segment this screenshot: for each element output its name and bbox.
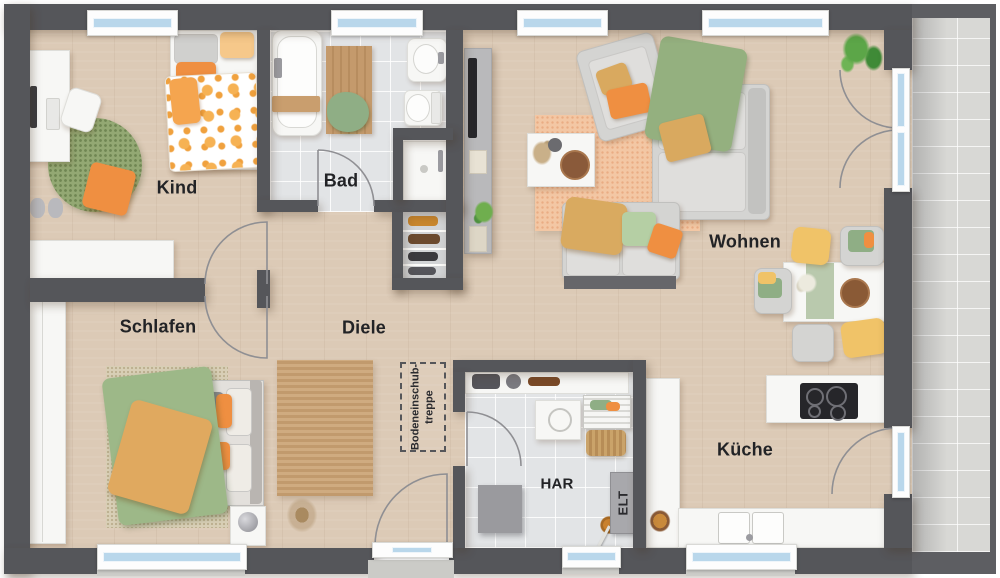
napkin-yellow-left	[758, 272, 776, 284]
helmet	[506, 374, 521, 389]
basin-faucet	[438, 52, 444, 64]
wall-har-west-b	[453, 466, 465, 548]
wall-bad-wohnen	[446, 30, 463, 290]
table-flowers	[792, 268, 822, 298]
burner-2	[826, 386, 847, 407]
window-kueche-glass	[692, 552, 791, 562]
shoes-2	[408, 234, 440, 244]
keyboard	[46, 98, 60, 130]
sofa-right-backrest	[748, 88, 766, 214]
attic-hatch-label: Bodeneinschub-treppe	[409, 364, 437, 450]
hallway-jute-rug	[277, 360, 373, 496]
shoe-shelf-1	[403, 230, 446, 232]
window-wohnen-1-glass	[523, 18, 602, 28]
burner-1	[806, 388, 824, 406]
window-kind-glass	[93, 18, 172, 28]
shelf-books-2	[469, 226, 487, 252]
attic-hatch: Bodeneinschub-treppe	[400, 362, 446, 452]
room-label-har: HAR	[540, 476, 573, 493]
shelf-plant	[470, 196, 498, 228]
wall-kind-schlafen	[30, 278, 205, 302]
potted-plant	[833, 22, 891, 82]
bed-pillow-orange-1	[216, 394, 232, 428]
sofa-blanket-tan	[560, 196, 629, 256]
kind-pillow-dotted	[220, 32, 254, 58]
kitchen-door-glass	[897, 432, 905, 492]
towel-pile	[327, 92, 369, 132]
bathtub-basin	[277, 36, 317, 128]
sink-basin-left	[718, 512, 750, 544]
monitor	[30, 86, 37, 128]
toilet-tank	[431, 92, 441, 124]
sofa-bottom-base	[564, 276, 676, 289]
sink-faucet	[746, 534, 753, 541]
skateboard	[528, 377, 560, 386]
bathtub-caddy	[272, 96, 320, 112]
entrance-step	[368, 560, 454, 578]
wall-har-kueche	[633, 360, 646, 548]
utility-grey-box	[478, 485, 522, 533]
shelf-books-1	[469, 150, 487, 174]
shoes-3	[408, 252, 438, 261]
wall-shower-left	[393, 140, 403, 200]
room-label-kind: Kind	[157, 178, 198, 199]
shoe-shelf-3	[403, 264, 446, 266]
shoes-4	[408, 267, 436, 275]
dried-plant	[280, 490, 324, 540]
room-label-bad: Bad	[324, 171, 359, 192]
wall-closet-bottom	[392, 278, 463, 290]
shower-drain	[420, 165, 428, 173]
kind-blanket	[169, 77, 202, 126]
dining-chair-grey-bottom	[792, 324, 834, 362]
cooktop	[800, 383, 858, 419]
wall-shower-top	[393, 128, 453, 140]
terrace-shadow	[912, 18, 990, 552]
burner-3	[808, 405, 821, 418]
nightstand-lamp	[238, 512, 258, 532]
tv	[468, 58, 477, 138]
room-label-kueche: Küche	[717, 440, 773, 461]
slipper-left	[30, 198, 45, 218]
wall-har-north	[453, 360, 637, 372]
kind-sideboard	[22, 240, 174, 280]
room-label-diele: Diele	[342, 318, 386, 339]
wall-har-west-a	[453, 372, 465, 412]
room-label-wohnen: Wohnen	[709, 232, 781, 253]
laundry-orange	[606, 402, 620, 411]
washbasin-bowl	[413, 44, 439, 74]
kitchen-decor-plate	[645, 505, 675, 537]
napkin-orange	[864, 232, 874, 248]
slipper-right	[48, 198, 63, 218]
coffee-table-tray	[560, 150, 590, 180]
wall-terrace-top	[912, 4, 996, 18]
dining-chair-yellow-top	[790, 226, 832, 266]
wall-east-3	[884, 494, 912, 548]
bath-faucet	[274, 58, 282, 78]
entrance-door-glass	[392, 547, 432, 553]
burner-4	[830, 405, 846, 421]
gym-bag	[472, 374, 500, 389]
elt-label: ELT	[616, 490, 631, 515]
wall-terrace-right	[990, 4, 996, 574]
window-har-glass	[567, 552, 616, 561]
window-wohnen-2-glass	[708, 18, 823, 28]
coffee-table-bowl	[548, 138, 562, 152]
wall-kind-bad	[257, 30, 270, 211]
table-bowl	[840, 278, 870, 308]
shoes-1	[408, 216, 438, 226]
window-bad-glass	[337, 18, 417, 28]
wall-east-1	[884, 30, 912, 70]
wall-terrace-bottom	[912, 552, 996, 574]
sink-basin-right	[752, 512, 784, 544]
dining-chair-yellow-bottom	[840, 317, 889, 359]
washing-machine-door	[548, 408, 572, 432]
wall-outer-left	[4, 4, 30, 574]
wardrobe-seam	[42, 288, 43, 542]
window-schlafen-glass	[103, 552, 241, 562]
wall-east-2	[884, 188, 912, 428]
french-door-glass-bottom	[897, 132, 905, 186]
toilet-bowl	[406, 94, 430, 122]
floor-plan: ELT Bodeneinschub-treppe	[0, 0, 1000, 578]
french-door-glass-top	[897, 73, 905, 127]
laundry-basket	[586, 430, 626, 456]
wall-bad-south-left	[257, 200, 318, 212]
shower-fixture	[438, 150, 443, 172]
kind-pillow-grey	[174, 34, 218, 64]
wall-outer-bottom-right	[449, 548, 912, 574]
room-label-schlafen: Schlafen	[120, 317, 197, 338]
wall-diele-stub	[257, 270, 270, 308]
shoe-shelf-2	[403, 248, 446, 250]
